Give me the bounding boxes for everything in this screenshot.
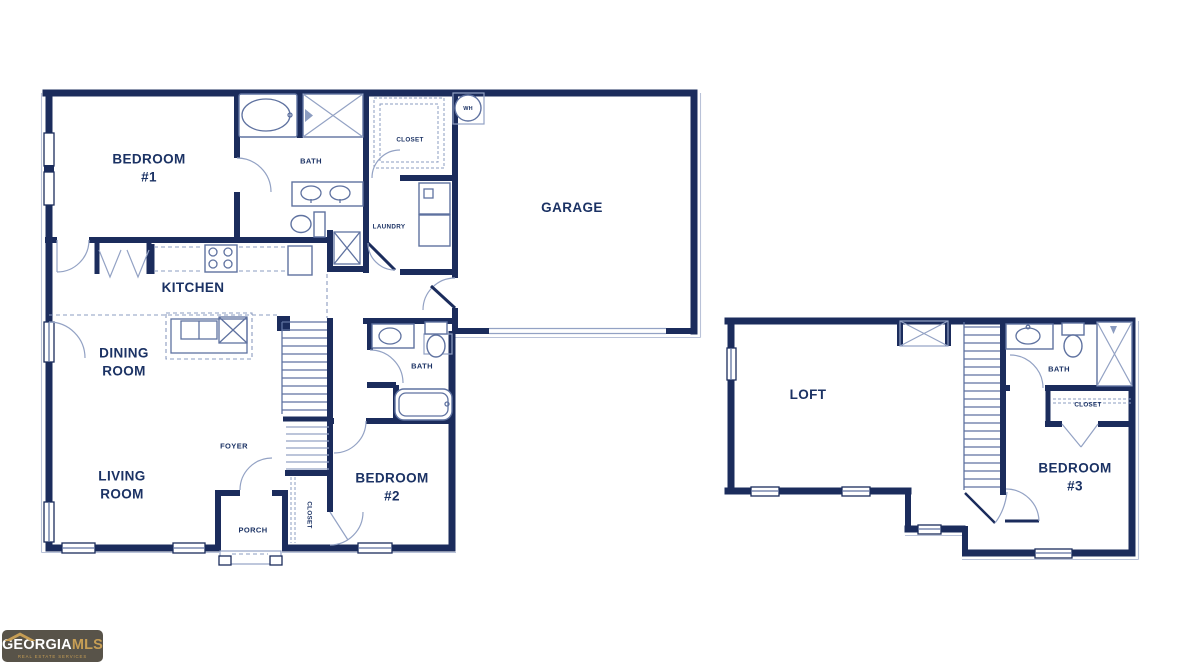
room-label-bedroom-3: BEDROOM #3: [1038, 459, 1111, 494]
room-label-porch: PORCH: [238, 526, 267, 535]
logo-tagline: REAL ESTATE SERVICES: [18, 654, 87, 659]
room-label-bath-3: BATH: [1048, 365, 1070, 374]
room-label-bedroom-1: BEDROOM #1: [112, 150, 185, 185]
second-floor-plan: [725, 318, 1139, 560]
room-label-closet-2: CLOSET: [306, 501, 313, 528]
room-label-loft: LOFT: [790, 386, 827, 404]
double-sink-vanity-icon: [292, 182, 363, 206]
room-label-kitchen: KITCHEN: [162, 279, 225, 297]
georgia-mls-logo: GEORGIAMLS REAL ESTATE SERVICES: [2, 630, 103, 662]
room-label-laundry: LAUNDRY: [373, 224, 406, 231]
toilet-icon: [425, 322, 447, 357]
room-label-bath-2: BATH: [411, 362, 433, 371]
room-label-garage: GARAGE: [541, 199, 603, 217]
sink-vanity-icon: [372, 324, 414, 348]
room-label-bath-1: BATH: [300, 157, 322, 166]
windows: [727, 348, 1072, 558]
closet-shelving: [374, 98, 444, 168]
room-label-living-room: LIVING ROOM: [98, 467, 145, 502]
floorplan-svg: [0, 0, 1182, 664]
kitchen-island: [166, 313, 252, 359]
washer-dryer-icon: [419, 183, 450, 246]
refrigerator-icon: [288, 246, 312, 275]
laundry-fixtures: [419, 93, 484, 354]
room-label-closet-1: CLOSET: [396, 137, 423, 144]
logo-text-mls: MLS: [72, 638, 103, 653]
water-heater-label: WH: [463, 106, 473, 112]
shower-icon: [1097, 322, 1132, 386]
attic-access-icon: [900, 321, 948, 346]
toilet-icon: [1062, 323, 1084, 357]
porch-slab: [219, 551, 282, 565]
bathtub-icon: [239, 94, 297, 137]
shower-icon: [303, 94, 363, 137]
sink-vanity-icon: [1006, 324, 1053, 349]
bathtub-icon: [395, 389, 452, 420]
staircase: [964, 322, 1000, 490]
room-label-dining-room: DINING ROOM: [99, 344, 149, 379]
stove-icon: [205, 245, 237, 272]
room-label-foyer: FOYER: [220, 442, 248, 451]
room-label-closet-3: CLOSET: [1074, 402, 1101, 409]
toilet-icon: [291, 212, 325, 237]
floorplan-image: BEDROOM #1 BATH CLOSET LAUNDRY WH GARAGE…: [0, 0, 1182, 664]
room-label-bedroom-2: BEDROOM #2: [355, 469, 428, 504]
hall-bath-fixtures: [372, 322, 452, 420]
logo-roof-icon: [2, 632, 38, 641]
kitchen-fixtures: [154, 245, 312, 359]
